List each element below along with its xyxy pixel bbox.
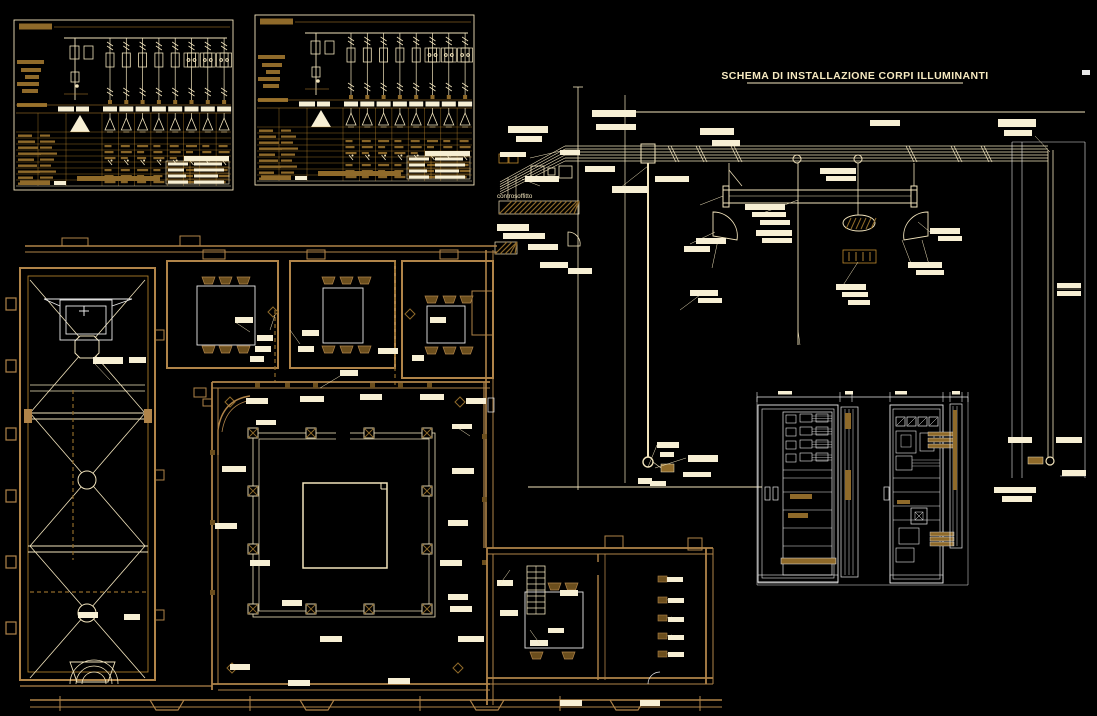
label-blob — [540, 262, 568, 268]
label-blob — [250, 356, 264, 362]
label-blob — [1057, 291, 1081, 296]
chair-symbol — [358, 277, 371, 284]
switch-symbol — [1028, 457, 1043, 464]
label-blob — [497, 580, 513, 586]
label-blob — [994, 487, 1036, 493]
label-blob — [246, 398, 268, 404]
busbar — [928, 438, 956, 442]
column-symbol — [248, 604, 258, 614]
wall-box — [370, 383, 375, 388]
fixture-symbol — [658, 615, 667, 621]
label-blob — [640, 700, 660, 706]
fixture-symbol — [658, 597, 667, 603]
label-blob — [752, 212, 786, 217]
label-blob — [688, 455, 718, 462]
label-blob — [762, 238, 792, 243]
column-symbol — [306, 428, 316, 438]
label-blob — [1056, 437, 1082, 443]
label-blob — [528, 244, 558, 250]
label-blob — [452, 468, 474, 474]
chair-symbol — [202, 346, 215, 353]
label-blob — [93, 357, 123, 364]
wall-box — [210, 520, 215, 525]
label-blob — [585, 166, 615, 172]
label-blob — [282, 600, 302, 606]
label-blob — [320, 636, 342, 642]
chair-symbol — [322, 277, 335, 284]
busbar — [928, 432, 956, 436]
label-blob — [360, 394, 382, 400]
label-blob — [255, 346, 271, 352]
label-blob — [448, 520, 468, 526]
chair-symbol — [562, 652, 575, 659]
label-blob — [250, 560, 270, 566]
panel-footer-bar — [77, 176, 160, 181]
label-blob — [638, 478, 652, 484]
column-symbol — [306, 604, 316, 614]
chair-symbol — [340, 277, 353, 284]
chair-symbol — [548, 583, 561, 590]
crossing-octagon — [75, 336, 99, 358]
schema-title-text: SCHEMA DI INSTALLAZIONE CORPI ILLUMINANT… — [721, 70, 988, 82]
cad-canvas[interactable]: SCHEMA DI INSTALLAZIONE CORPI ILLUMINANT… — [0, 0, 1097, 716]
label-blob — [760, 220, 790, 225]
label-blob — [650, 481, 666, 486]
corner-mark — [1082, 70, 1090, 75]
wall-box — [285, 383, 290, 388]
label-blob — [684, 246, 710, 252]
label-blob — [660, 452, 674, 457]
wall-box — [255, 383, 260, 388]
label-blob — [690, 290, 718, 296]
chair-symbol — [565, 583, 578, 590]
label-blob — [388, 678, 410, 684]
column-symbol — [422, 486, 432, 496]
label-blob — [712, 140, 740, 146]
label-blob — [257, 335, 273, 341]
chair-symbol — [425, 296, 438, 303]
label-blob — [516, 136, 542, 142]
cad-drawing-surface[interactable]: SCHEMA DI INSTALLAZIONE CORPI ILLUMINANT… — [0, 0, 1097, 716]
column-symbol — [422, 428, 432, 438]
label-blob — [288, 680, 310, 686]
label-blob — [230, 664, 250, 670]
ceiling-label: controsoffitto — [497, 193, 533, 200]
label-blob — [826, 176, 856, 181]
label-blob — [302, 330, 319, 336]
chair-symbol — [340, 346, 353, 353]
wall-box — [210, 450, 215, 455]
wall-box — [313, 383, 318, 388]
chair-symbol — [237, 277, 250, 284]
label-blob — [235, 317, 253, 323]
fixture-symbol — [658, 651, 667, 657]
label-blob — [1062, 470, 1086, 476]
label-blob — [466, 398, 486, 404]
label-blob — [668, 617, 684, 622]
label-blob — [129, 357, 146, 363]
label-blob — [430, 317, 446, 323]
label-blob — [657, 442, 679, 448]
label-blob — [420, 394, 444, 400]
column-symbol — [248, 486, 258, 496]
label-blob — [667, 577, 683, 582]
busbar — [928, 444, 956, 448]
column-symbol — [422, 544, 432, 554]
chair-symbol — [358, 346, 371, 353]
label-blob — [497, 224, 529, 231]
chair-symbol — [425, 347, 438, 354]
label-blob — [612, 186, 648, 193]
panel-footer-bar — [318, 171, 401, 176]
wall-box — [482, 497, 487, 502]
label-blob — [560, 150, 580, 155]
label-blob — [668, 635, 684, 640]
label-blob — [508, 126, 548, 133]
label-blob — [560, 590, 578, 596]
label-blob — [916, 270, 944, 275]
chair-symbol — [202, 277, 215, 284]
label-blob — [560, 700, 582, 706]
column-symbol — [248, 544, 258, 554]
fixture-symbol — [658, 633, 667, 639]
chair-symbol — [219, 277, 232, 284]
label-blob — [848, 300, 870, 305]
chair-symbol — [219, 346, 232, 353]
column-symbol — [364, 428, 374, 438]
label-blob — [842, 292, 868, 297]
label-blob — [412, 355, 424, 361]
label-blob — [1004, 130, 1032, 136]
wall-box — [398, 383, 403, 388]
chair-symbol — [460, 347, 473, 354]
label-blob — [1057, 283, 1081, 288]
label-blob — [745, 204, 785, 210]
label-blob — [655, 176, 689, 182]
column-symbol — [422, 604, 432, 614]
chair-symbol — [443, 347, 456, 354]
label-blob — [450, 606, 472, 612]
label-blob — [298, 346, 314, 352]
wall-box — [210, 590, 215, 595]
label-blob — [340, 370, 358, 376]
label-blob — [503, 233, 545, 239]
label-blob — [930, 228, 960, 234]
label-blob — [698, 298, 722, 303]
label-blob — [448, 594, 468, 600]
label-blob — [500, 610, 518, 616]
label-blob — [696, 238, 726, 244]
label-blob — [452, 424, 472, 429]
label-blob — [124, 614, 140, 620]
label-blob — [683, 472, 711, 477]
label-blob — [222, 466, 246, 472]
label-blob — [592, 110, 636, 117]
label-blob — [378, 348, 398, 354]
fixture-symbol — [658, 576, 667, 582]
label-blob — [1008, 437, 1032, 443]
wall-box — [482, 434, 487, 439]
label-blob — [215, 523, 237, 529]
label-blob — [1002, 496, 1032, 502]
label-blob — [256, 420, 276, 425]
column-symbol — [248, 428, 258, 438]
busbar — [781, 558, 836, 564]
label-blob — [440, 560, 462, 566]
label-blob — [668, 652, 684, 657]
label-blob — [668, 598, 684, 603]
panel-title-block — [19, 24, 52, 30]
label-blob — [568, 268, 592, 274]
chair-symbol — [237, 346, 250, 353]
label-blob — [908, 262, 942, 268]
label-blob — [458, 636, 484, 642]
label-blob — [525, 176, 559, 182]
label-blob — [78, 612, 98, 618]
label-blob — [836, 284, 866, 290]
chair-symbol — [443, 296, 456, 303]
panel-title-block — [260, 19, 293, 25]
label-blob — [300, 396, 324, 402]
label-blob — [870, 120, 900, 126]
label-blob — [500, 152, 526, 157]
label-blob — [700, 128, 734, 135]
chair-symbol — [530, 652, 543, 659]
label-blob — [820, 168, 856, 174]
label-blob — [756, 230, 792, 236]
chair-symbol — [460, 296, 473, 303]
label-blob — [998, 119, 1036, 127]
label-blob — [596, 124, 636, 130]
wall-box — [427, 383, 432, 388]
column-symbol — [364, 604, 374, 614]
chair-symbol — [322, 346, 335, 353]
label-blob — [938, 236, 962, 241]
label-blob — [548, 628, 564, 633]
